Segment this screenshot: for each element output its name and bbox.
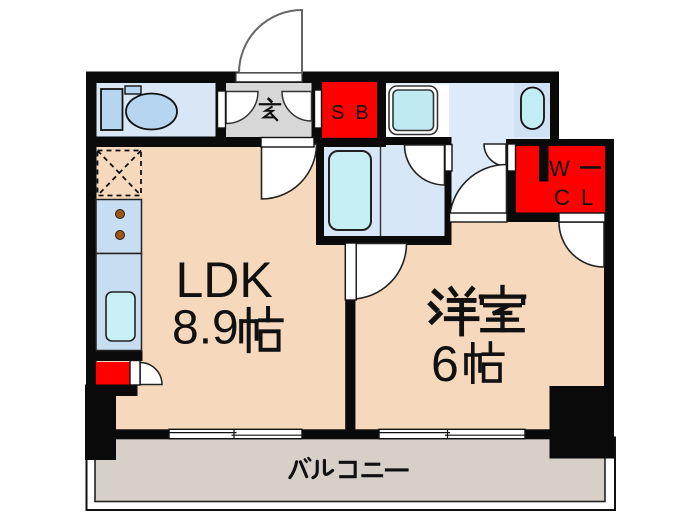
- svg-text:SB: SB: [331, 102, 380, 124]
- svg-text:6: 6: [431, 336, 459, 392]
- svg-text:C: C: [554, 185, 570, 210]
- svg-text:L: L: [581, 185, 593, 210]
- svg-text:8.9: 8.9: [172, 302, 239, 355]
- svg-text:W: W: [549, 156, 570, 181]
- svg-text:LDK: LDK: [176, 252, 273, 308]
